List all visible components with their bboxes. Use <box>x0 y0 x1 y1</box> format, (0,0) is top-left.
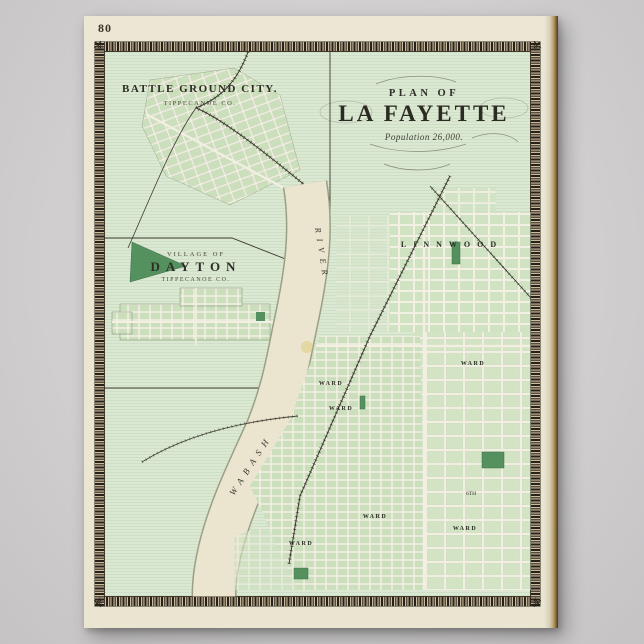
atlas-page: 80 <box>84 16 558 628</box>
frame-border-bottom <box>95 597 540 606</box>
frame-border-left <box>95 42 104 606</box>
battle-ground-inset-title: BATTLE GROUND CITY. <box>112 83 288 95</box>
frame-border-top <box>95 42 540 51</box>
main-map-title: LA FAYETTE <box>316 101 532 127</box>
linnwood-district-label: LINNWOOD <box>396 240 508 249</box>
main-map-kicker: PLAN OF <box>350 88 498 99</box>
dayton-inset-kicker: VILLAGE OF <box>126 251 266 258</box>
battle-ground-inset-subtitle: TIPPECANOE CO. <box>112 100 288 107</box>
main-map-population: Population 26,000. <box>350 132 498 142</box>
frame-border-right <box>531 42 540 606</box>
dayton-inset-title: DAYTON <box>126 259 266 275</box>
poster-background: 80 <box>0 0 644 644</box>
dayton-inset-subtitle: TIPPECANOE CO. <box>126 277 266 283</box>
